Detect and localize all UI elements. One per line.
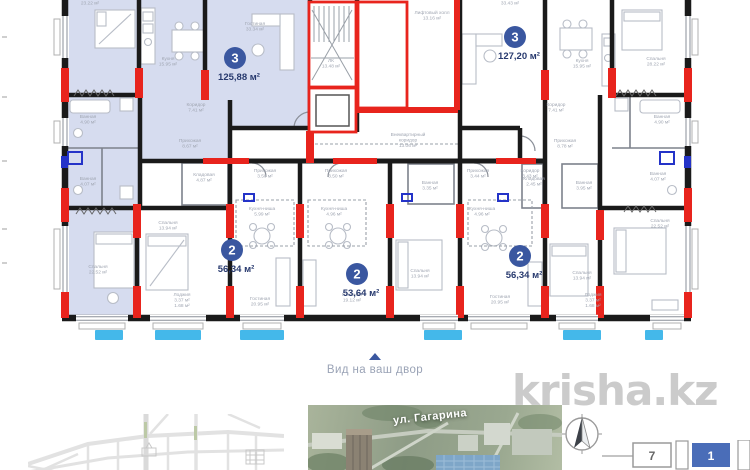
room-label: Спальня13.94 м² — [158, 220, 178, 232]
room-label: Лифтовый холл13.16 м² — [415, 9, 450, 22]
up-triangle-icon — [369, 353, 381, 360]
room-label: Кладовая4.87 м² — [193, 172, 215, 184]
room-label: Кладовая2.45 м² — [523, 176, 545, 188]
svg-text:56,34 м²: 56,34 м² — [506, 270, 543, 281]
room-label: Гостиная33.43 м² — [500, 0, 521, 7]
room-label: Гостиная33.34 м² — [245, 21, 266, 33]
svg-text:125,88 м²: 125,88 м² — [218, 72, 260, 83]
room-label: Лоджия3.37 м²1.68 м² — [174, 292, 191, 309]
svg-text:127,20 м²: 127,20 м² — [498, 51, 540, 62]
room-label: Прихожая8.78 м² — [554, 138, 577, 150]
room-label: Спальня22.52 м² — [88, 264, 108, 276]
svg-text:3: 3 — [511, 30, 518, 45]
room-label: Кухня15.95 м² — [573, 58, 592, 70]
room-label: Коридор7.41 м² — [547, 102, 566, 114]
courtyard-caption-text: Вид на ваш двор — [270, 364, 480, 376]
room-label: Спальня13.94 м² — [410, 268, 430, 280]
dimension-ticks — [2, 36, 7, 264]
scheme-box-7-label: 7 — [649, 449, 656, 463]
apartment-badge: 3127,20 м² — [498, 26, 540, 62]
watermark: krisha.kz — [512, 366, 718, 415]
room-label: Кухня-ниша5.99 м² — [249, 206, 276, 218]
svg-text:53,64 м²: 53,64 м² — [343, 288, 380, 299]
room-label: Ванная3.95 м² — [576, 180, 593, 192]
room-label: Ванная4.90 м² — [80, 114, 97, 126]
apartment-badge: 253,64 м² — [343, 263, 380, 299]
location-map-thumbnail — [28, 414, 284, 470]
courtyard-caption: Вид на ваш двор — [270, 353, 480, 376]
room-label: Прихожая3.50 м² — [325, 168, 348, 180]
svg-text:3: 3 — [231, 51, 238, 66]
floor-scheme-strip: 7 1 — [600, 440, 750, 470]
room-label: Спальня28.22 м² — [646, 56, 666, 68]
room-label: Ванная3.35 м² — [422, 180, 439, 192]
room-label: Ванная4.90 м² — [654, 114, 671, 126]
staircase — [309, 2, 356, 87]
room-label: Внеквартирныйкоридор13.06 м² — [391, 131, 426, 149]
svg-text:56,34 м²: 56,34 м² — [218, 264, 255, 275]
room-label: Спальня22.52 м² — [650, 218, 670, 230]
floorplan-photo: Спальня23.22 м²Гостиная33.34 м²Кухня15.9… — [0, 0, 750, 470]
svg-text:2: 2 — [516, 249, 523, 264]
room-label: Ванная4.07 м² — [650, 171, 667, 183]
svg-text:2: 2 — [228, 243, 235, 258]
room-label: Лоджия3.37 м²1.68 м² — [585, 292, 602, 309]
room-label: Прихожая3.44 м² — [467, 168, 490, 180]
balcony-strips — [95, 330, 663, 340]
apartment-badge: 256,34 м² — [218, 239, 255, 275]
room-label: Кухня-ниша4.96 м² — [321, 206, 348, 218]
room-label: Спальня13.94 м² — [572, 270, 592, 282]
room-label: Гостиная20.95 м² — [490, 294, 511, 306]
floor-plan: Спальня23.22 м²Гостиная33.34 м²Кухня15.9… — [0, 0, 750, 350]
room-label: Спальня23.22 м² — [80, 0, 100, 7]
room-label: Кухня-ниша4.96 м² — [469, 206, 496, 218]
room-label: Гостиная20.95 м² — [250, 296, 271, 308]
map-streets — [28, 414, 284, 470]
room-label: Ванная4.07 м² — [80, 176, 97, 188]
svg-text:2: 2 — [353, 267, 360, 282]
scheme-box-1-label: 1 — [708, 449, 715, 463]
room-label: Коридор7.41 м² — [187, 102, 206, 114]
room-label: Прихожая3.50 м² — [254, 168, 277, 180]
